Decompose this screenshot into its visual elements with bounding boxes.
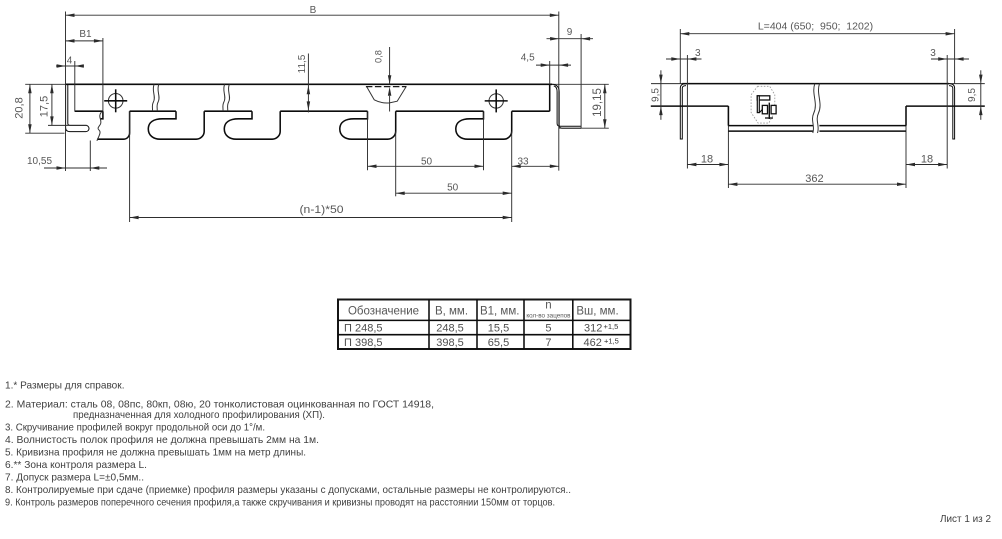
svg-text:9,5: 9,5 [650, 88, 661, 102]
svg-text:6.** Зона контроля размера L.: 6.** Зона контроля размера L. [5, 459, 147, 471]
svg-text:33: 33 [517, 157, 529, 168]
svg-text:Лист 1 из 2: Лист 1 из 2 [940, 513, 991, 525]
svg-text:312: 312 [584, 323, 602, 335]
svg-text:9. Контроль размеров поперечно: 9. Контроль размеров поперечного сечения… [5, 497, 555, 509]
svg-text:9,5: 9,5 [967, 88, 978, 102]
svg-text:кол-во зацепов: кол-во зацепов [526, 313, 571, 320]
svg-text:18: 18 [701, 154, 713, 166]
svg-text:4: 4 [67, 56, 73, 67]
svg-text:18: 18 [921, 154, 933, 166]
svg-text:50: 50 [447, 182, 459, 193]
svg-text:462: 462 [584, 337, 602, 349]
svg-text:248,5: 248,5 [436, 323, 464, 335]
svg-text:В1, мм.: В1, мм. [480, 306, 519, 318]
svg-text:7: 7 [545, 337, 551, 349]
svg-text:5. Кривизна профиля не должна: 5. Кривизна профиля не должна превышать … [5, 447, 306, 459]
svg-text:предназначенная для холодного: предназначенная для холодного профилиров… [73, 409, 325, 421]
svg-text:398,5: 398,5 [436, 337, 464, 349]
svg-text:+1,5: +1,5 [604, 337, 619, 346]
svg-text:3: 3 [930, 48, 936, 59]
svg-text:П 398,5: П 398,5 [344, 337, 383, 349]
svg-text:П 248,5: П 248,5 [344, 323, 383, 335]
svg-text:20,8: 20,8 [13, 97, 25, 118]
svg-text:50: 50 [421, 157, 433, 168]
svg-text:9: 9 [567, 27, 573, 38]
svg-text:15,5: 15,5 [488, 323, 509, 335]
svg-text:4,5: 4,5 [521, 53, 535, 64]
svg-text:65,5: 65,5 [488, 337, 509, 349]
svg-text:(n-1)*50: (n-1)*50 [300, 204, 344, 216]
svg-text:7. Допуск размера L=±0,5мм..: 7. Допуск размера L=±0,5мм.. [5, 472, 144, 484]
svg-text:10,55: 10,55 [27, 156, 52, 167]
svg-text:5: 5 [545, 323, 551, 335]
svg-text:B1: B1 [79, 29, 92, 40]
svg-text:3: 3 [695, 48, 701, 59]
svg-text:19,15: 19,15 [592, 88, 604, 117]
svg-text:+1,5: +1,5 [604, 322, 619, 331]
svg-text:3. Скручивание профилей вокруг: 3. Скручивание профилей вокруг продольно… [5, 422, 265, 434]
svg-text:8. Контролируемые при сдаче (п: 8. Контролируемые при сдаче (приемке) пр… [5, 484, 571, 496]
svg-text:11,5: 11,5 [297, 54, 308, 73]
svg-text:В, мм.: В, мм. [435, 306, 468, 318]
svg-text:Обозначение: Обозначение [348, 306, 419, 318]
svg-text:0,8: 0,8 [373, 50, 383, 63]
svg-text:362: 362 [805, 173, 823, 185]
svg-text:n: n [545, 300, 551, 312]
svg-text:B: B [310, 5, 317, 16]
svg-text:L=404 (650; 950; 1202): L=404 (650; 950; 1202) [758, 21, 873, 33]
svg-text:17,5: 17,5 [38, 96, 50, 117]
svg-text:1.* Размеры для справок.: 1.* Размеры для справок. [5, 380, 125, 392]
svg-text:Вш, мм.: Вш, мм. [576, 306, 618, 318]
svg-text:4. Волнистость полок профиля н: 4. Волнистость полок профиля не должна п… [5, 434, 319, 446]
